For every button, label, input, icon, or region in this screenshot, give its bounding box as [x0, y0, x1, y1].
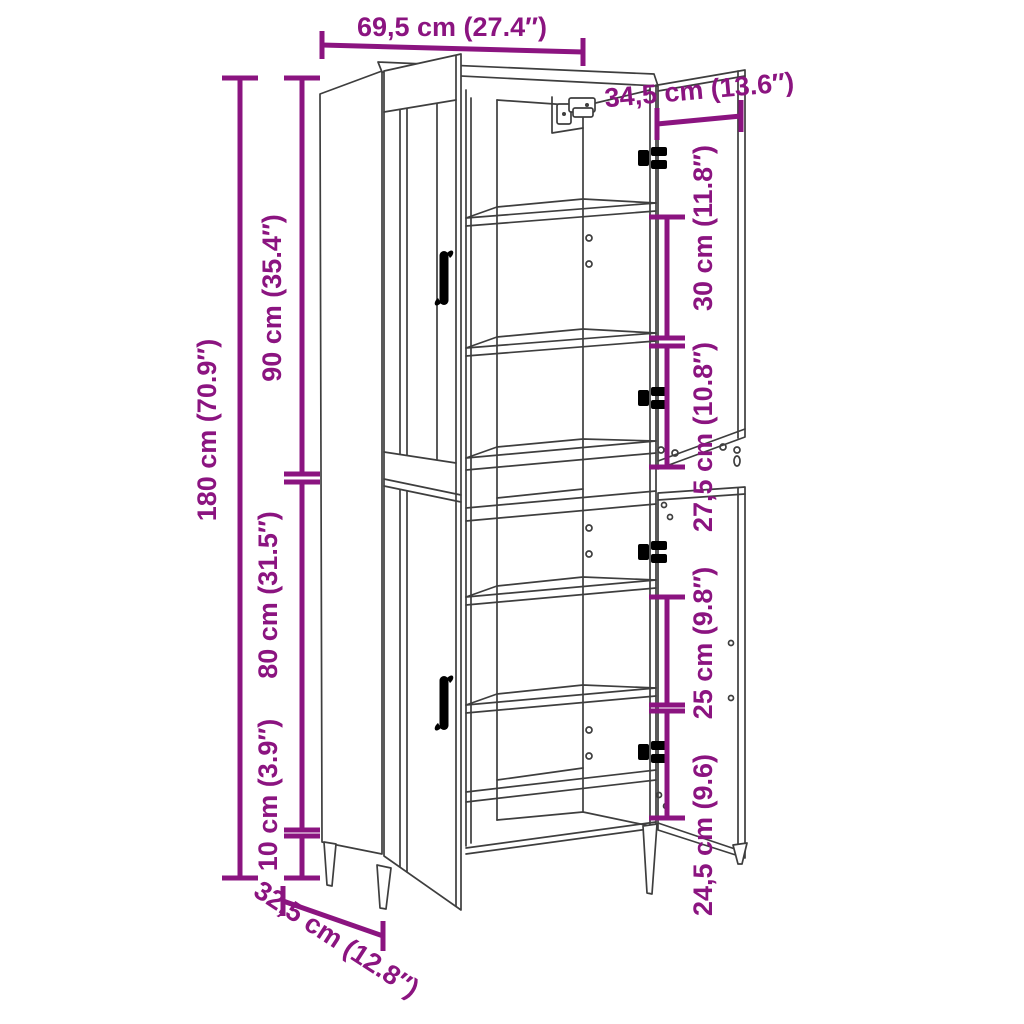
soft-close-damper-icon: [552, 97, 595, 133]
lower-cabinet-top-panel: [466, 489, 656, 521]
lower-cabinet-bottom-panel: [466, 768, 656, 802]
dim-30-label: 30 cm (11.8″): [688, 145, 718, 311]
dim-upper-height: 90 cm (35.4″): [257, 78, 320, 474]
dim-total-height: 180 cm (70.9″): [192, 78, 258, 878]
lower-shelf-1: [466, 577, 656, 605]
dim-lower-height-label: 80 cm (31.5″): [253, 511, 283, 679]
cabinet-leg: [643, 824, 657, 894]
dim-upper-height-label: 90 cm (35.4″): [257, 214, 287, 382]
upper-shelf-2: [466, 329, 656, 356]
cabinet-interior: [466, 90, 656, 846]
upper-shelf-1: [466, 199, 656, 226]
dim-27-5-label: 27,5 cm (10.8″): [688, 342, 718, 532]
cabinet-line-art: [320, 54, 747, 910]
dimension-diagram-page: 69,5 cm (27.4″) 34,5 cm (13.6″) 180 cm (…: [0, 0, 1024, 1024]
dim-width-label: 69,5 cm (27.4″): [357, 12, 547, 42]
dimension-annotations: 69,5 cm (27.4″) 34,5 cm (13.6″) 180 cm (…: [192, 12, 795, 1004]
cabinet-leg: [324, 842, 336, 886]
left-doors: [384, 54, 461, 910]
dim-depth-label: 32,5 cm (12.8″): [249, 875, 425, 1004]
cabinet-leg: [377, 865, 391, 909]
left-side-panel: [320, 71, 382, 854]
lower-shelf-2: [466, 685, 656, 713]
dim-leg-height-label: 10 cm (3.9″): [253, 719, 283, 872]
bottom-front-edge: [466, 822, 656, 848]
cabinet-leg: [733, 843, 747, 864]
dim-total-height-label: 180 cm (70.9″): [192, 339, 222, 522]
dim-depth: 32,5 cm (12.8″): [249, 875, 425, 1004]
dim-25-label: 25 cm (9.8″): [688, 567, 718, 720]
dim-leg-height: 10 cm (3.9″): [253, 719, 320, 878]
upper-cabinet-bottom-panel: [466, 439, 656, 470]
cabinet-dimension-diagram: 69,5 cm (27.4″) 34,5 cm (13.6″) 180 cm (…: [0, 0, 1024, 1024]
dim-24-5-label: 24,5 cm (9.6): [688, 754, 718, 916]
